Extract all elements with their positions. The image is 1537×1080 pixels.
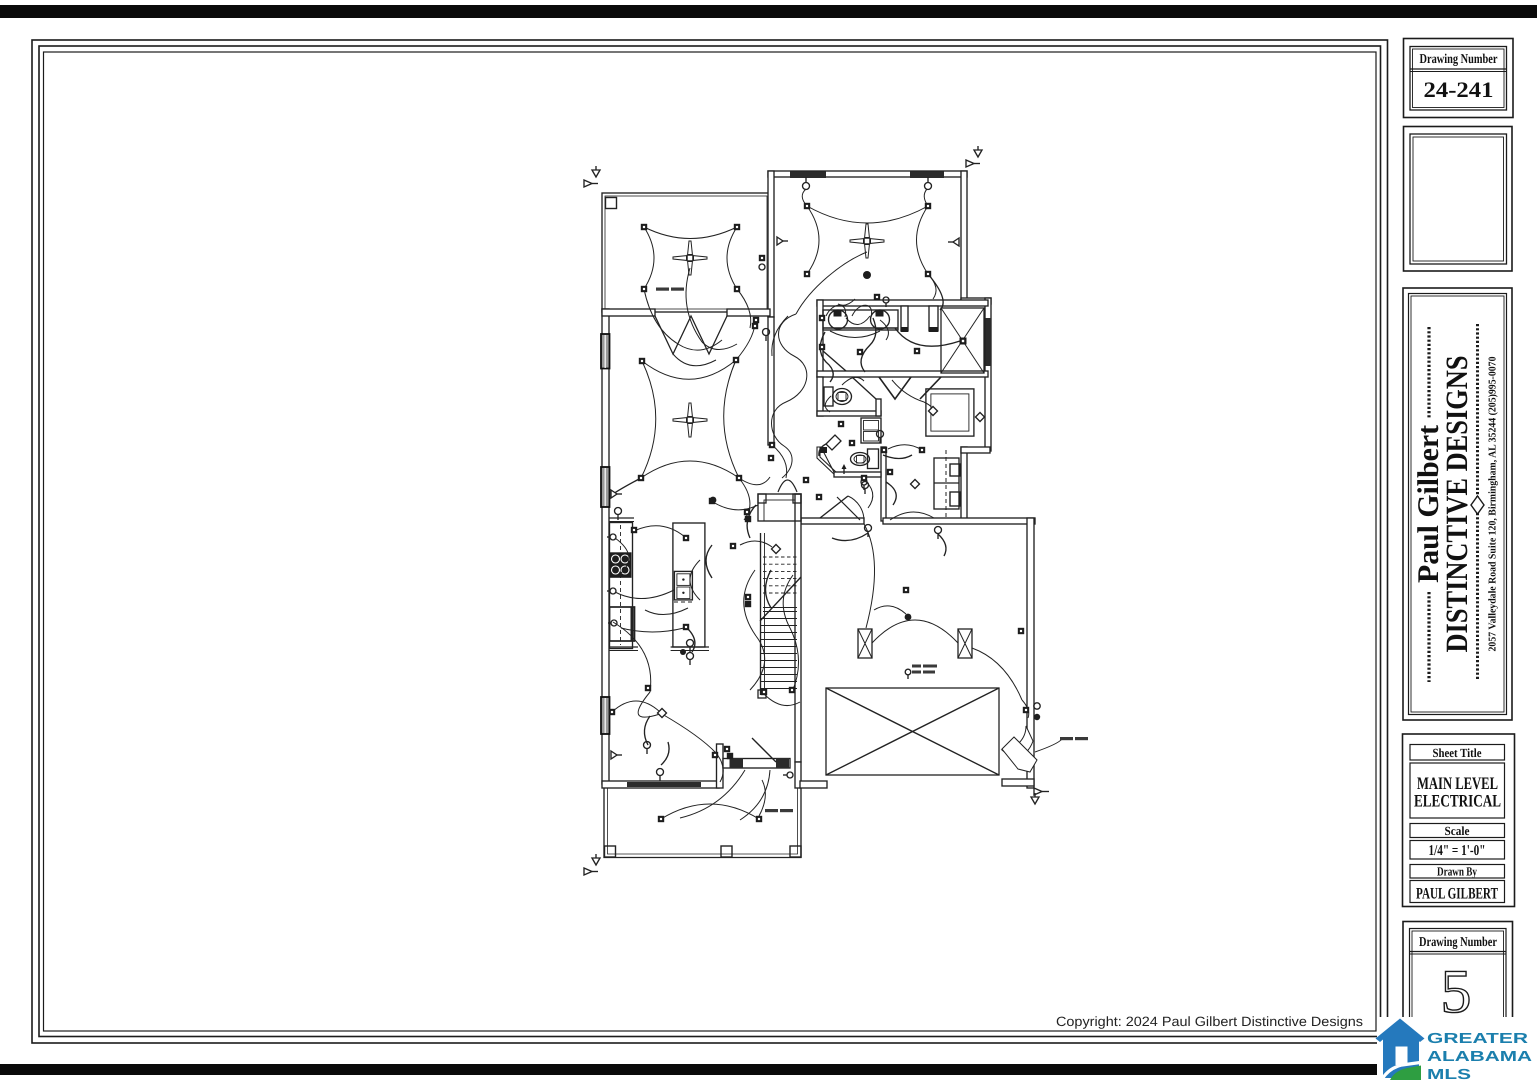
svg-text:PAUL GILBERT: PAUL GILBERT: [1416, 886, 1498, 903]
svg-text:Copyright: 2024 Paul Gilber: Copyright: 2024 Paul Gilbert Distinctive…: [1056, 1014, 1363, 1029]
svg-text:ELECTRICAL: ELECTRICAL: [1414, 791, 1501, 811]
svg-text:GREATER: GREATER: [1427, 1031, 1529, 1047]
svg-text:DISTINCTIVE DESIGNS: DISTINCTIVE DESIGNS: [1439, 356, 1474, 653]
svg-text:5: 5: [1441, 958, 1472, 1026]
svg-text:MLS: MLS: [1427, 1067, 1471, 1080]
svg-text:ALABAMA: ALABAMA: [1427, 1049, 1533, 1065]
svg-text:24-241: 24-241: [1424, 77, 1494, 102]
svg-text:1/4" = 1'-0": 1/4" = 1'-0": [1429, 843, 1486, 859]
svg-text:2057 Valleydale Road Suite 120: 2057 Valleydale Road Suite 120, Birmingh…: [1488, 357, 1499, 652]
svg-text:Drawing Number: Drawing Number: [1419, 934, 1497, 949]
svg-text:Drawing Number: Drawing Number: [1420, 51, 1498, 66]
svg-text:Sheet Title: Sheet Title: [1433, 746, 1482, 760]
svg-text:Drawn By: Drawn By: [1437, 865, 1478, 879]
svg-text:Scale: Scale: [1445, 824, 1470, 838]
